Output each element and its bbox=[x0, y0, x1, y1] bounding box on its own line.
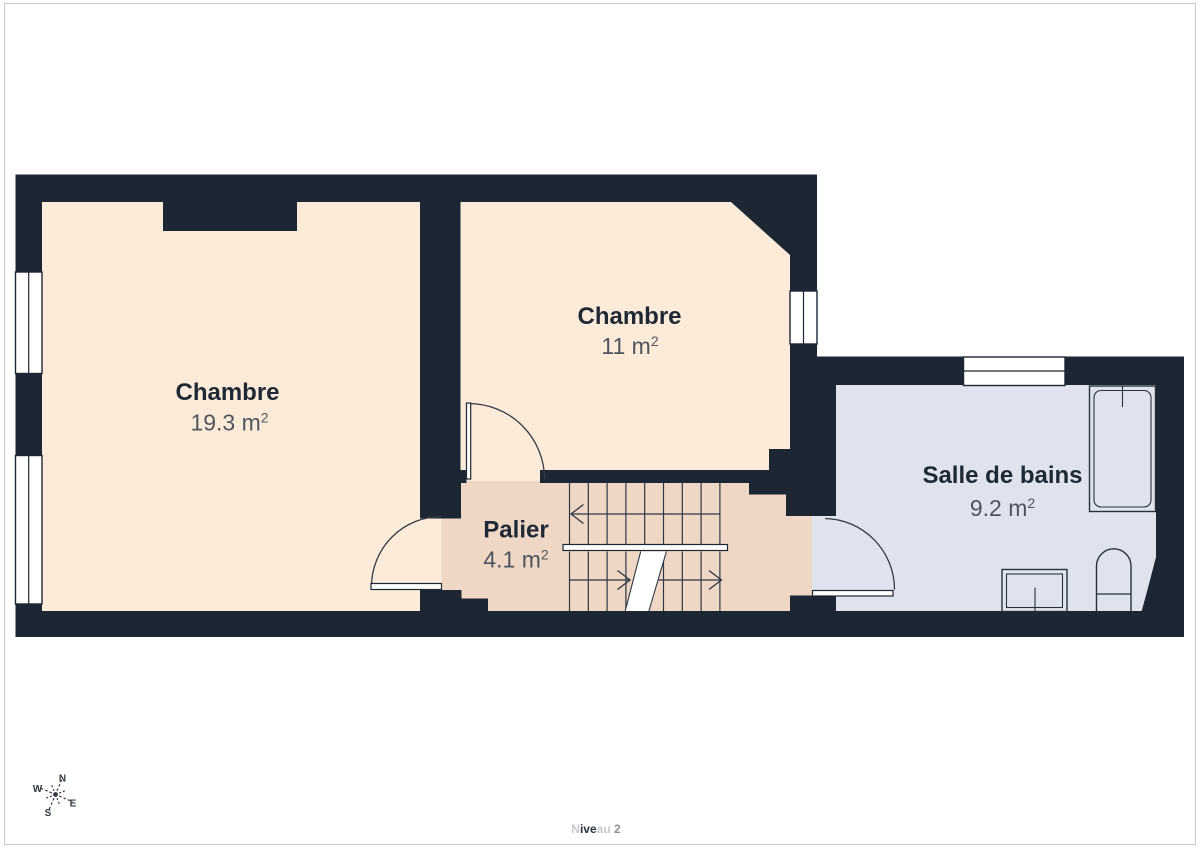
svg-text:E: E bbox=[70, 799, 77, 810]
svg-text:Chambre: Chambre bbox=[577, 303, 681, 330]
svg-text:Palier: Palier bbox=[483, 517, 548, 544]
svg-text:4.1 m2: 4.1 m2 bbox=[483, 547, 549, 573]
svg-text:Chambre: Chambre bbox=[175, 379, 279, 406]
svg-text:11 m2: 11 m2 bbox=[601, 333, 658, 359]
svg-text:19.3 m2: 19.3 m2 bbox=[190, 410, 268, 436]
svg-text:Niveau 2: Niveau 2 bbox=[571, 822, 621, 836]
svg-text:N: N bbox=[59, 774, 66, 785]
svg-text:W: W bbox=[33, 784, 43, 795]
svg-text:S: S bbox=[45, 808, 52, 819]
svg-text:Salle de bains: Salle de bains bbox=[922, 462, 1082, 489]
svg-text:9.2 m2: 9.2 m2 bbox=[970, 495, 1036, 521]
